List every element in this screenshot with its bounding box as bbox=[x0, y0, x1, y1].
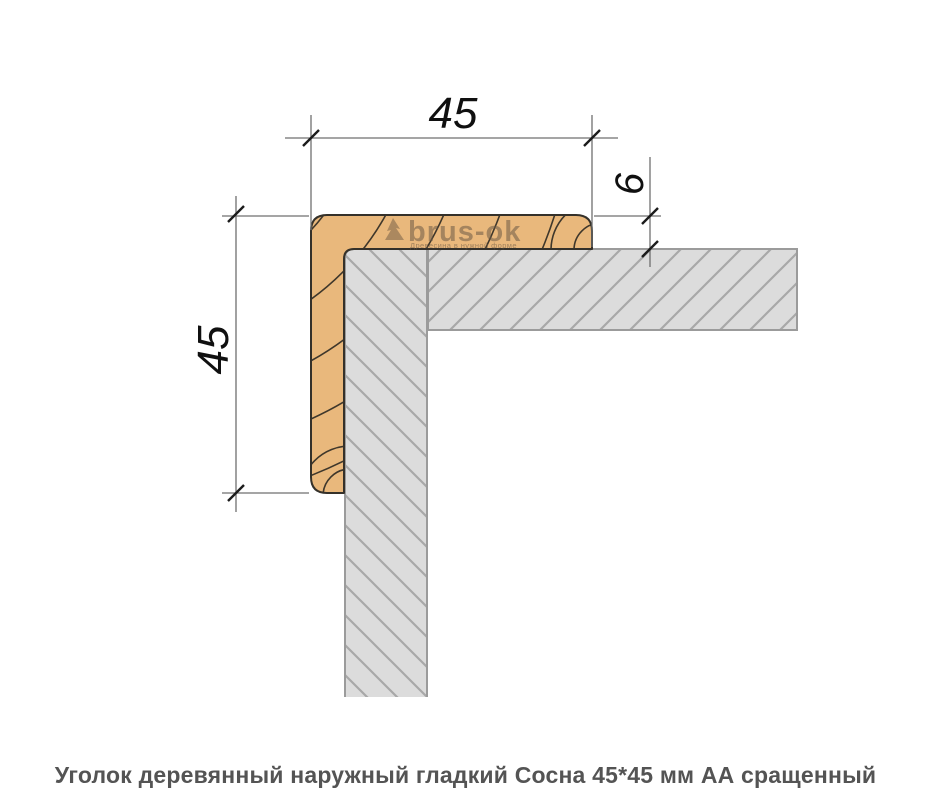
product-title-caption: Уголок деревянный наружный гладкий Сосна… bbox=[0, 762, 931, 789]
corner-profile-section-drawing: brus-ok Древесина в нужной форме 45 45 bbox=[0, 0, 931, 745]
dimension-width-value: 45 bbox=[429, 89, 478, 138]
dimension-thickness-value: 6 bbox=[608, 172, 652, 195]
wall-section bbox=[345, 249, 797, 697]
technical-drawing-page: brus-ok Древесина в нужной форме 45 45 bbox=[0, 0, 931, 800]
dimension-height-value: 45 bbox=[189, 325, 238, 374]
wall-horizontal bbox=[428, 249, 797, 330]
watermark-tagline-text: Древесина в нужной форме bbox=[410, 241, 517, 250]
wall-vertical bbox=[345, 249, 427, 697]
